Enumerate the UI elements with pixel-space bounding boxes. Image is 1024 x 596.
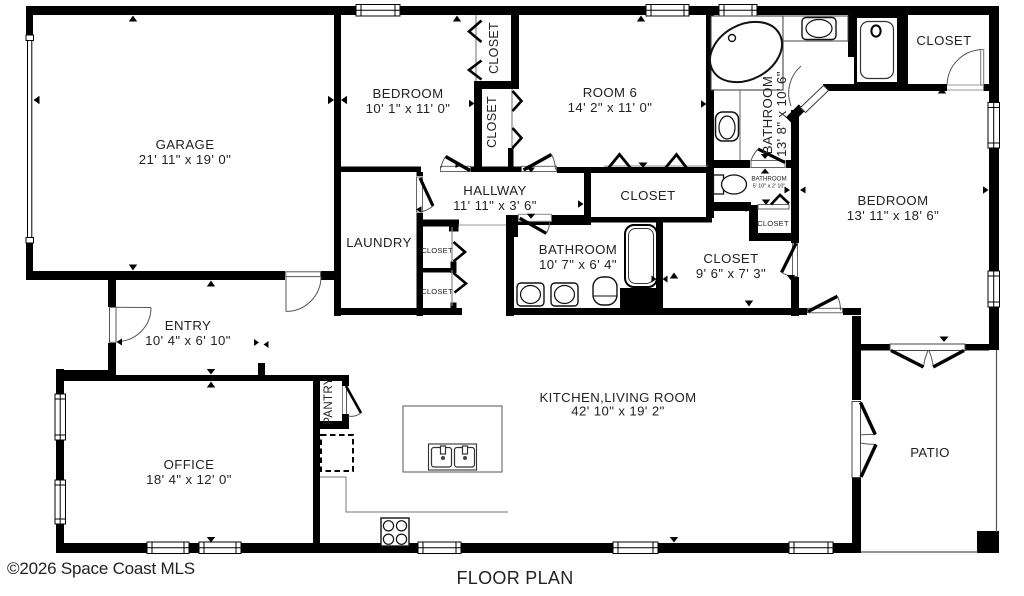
svg-text:GARAGE: GARAGE — [156, 137, 215, 152]
svg-text:BEDROOM: BEDROOM — [858, 193, 929, 208]
svg-text:CLOSET: CLOSET — [421, 287, 453, 296]
svg-text:LAUNDRY: LAUNDRY — [346, 235, 412, 250]
svg-text:BATHROOM: BATHROOM — [751, 176, 786, 183]
svg-text:PATIO: PATIO — [910, 445, 950, 460]
svg-text:FLOOR PLAN: FLOOR PLAN — [456, 568, 573, 588]
svg-text:10' 1" x 11' 0": 10' 1" x 11' 0" — [366, 101, 451, 116]
svg-text:42' 10" x 19' 2": 42' 10" x 19' 2" — [571, 404, 664, 419]
svg-text:CLOSET: CLOSET — [703, 251, 758, 266]
svg-text:BATHROOM: BATHROOM — [760, 76, 775, 154]
svg-text:CLOSET: CLOSET — [620, 188, 675, 203]
svg-text:10' 7" x 6' 4": 10' 7" x 6' 4" — [539, 257, 617, 272]
svg-text:CLOSET: CLOSET — [485, 96, 499, 148]
svg-text:CLOSET: CLOSET — [757, 219, 789, 228]
svg-text:18' 4" x 12' 0": 18' 4" x 12' 0" — [146, 472, 232, 487]
svg-text:5' 10" x 2' 10": 5' 10" x 2' 10" — [753, 184, 786, 190]
svg-text:BEDROOM: BEDROOM — [373, 86, 444, 101]
svg-text:©2026 Space Coast MLS: ©2026 Space Coast MLS — [7, 559, 195, 578]
svg-text:BATHROOM: BATHROOM — [539, 242, 617, 257]
svg-text:13' 11" x 18' 6": 13' 11" x 18' 6" — [847, 208, 939, 223]
svg-text:OFFICE: OFFICE — [164, 457, 215, 472]
svg-text:CLOSET: CLOSET — [421, 246, 453, 255]
svg-text:CLOSET: CLOSET — [487, 22, 501, 74]
svg-text:CLOSET: CLOSET — [916, 33, 971, 48]
svg-text:10' 4" x 6' 10": 10' 4" x 6' 10" — [145, 333, 231, 348]
svg-text:ROOM 6: ROOM 6 — [583, 85, 637, 100]
svg-text:14' 2" x 11' 0": 14' 2" x 11' 0" — [568, 100, 653, 115]
svg-text:ENTRY: ENTRY — [165, 318, 211, 333]
svg-text:9' 6" x 7' 3": 9' 6" x 7' 3" — [696, 266, 766, 281]
svg-text:PANTRY: PANTRY — [323, 377, 335, 424]
svg-text:13' 8" x 10' 6": 13' 8" x 10' 6" — [774, 71, 789, 157]
svg-text:11' 11" x 3' 6": 11' 11" x 3' 6" — [453, 198, 537, 213]
svg-text:21' 11" x 19' 0": 21' 11" x 19' 0" — [139, 152, 231, 167]
svg-text:HALLWAY: HALLWAY — [463, 183, 526, 198]
